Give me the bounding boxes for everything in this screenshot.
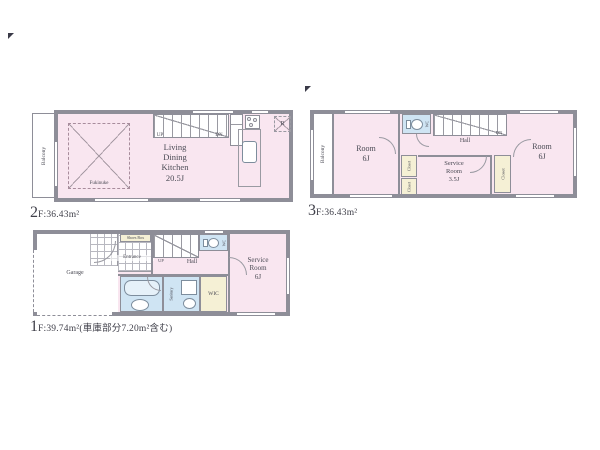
refrigerator-icon: R [274,116,291,132]
kitchen-sink-icon [242,141,257,163]
cabinet-divider [231,124,242,125]
hall-label: Hall [178,259,206,266]
floor-number: 1 [30,318,38,336]
hall-label: Hall [450,138,480,145]
wc-label: WC [425,121,430,127]
closet-label: Closet [407,161,412,171]
window [350,194,392,198]
ldk-label: Living Dining Kitchen 20.5J [135,142,215,183]
window [310,130,314,180]
stove-burner [249,123,253,127]
washbasin-icon [183,298,196,309]
window [520,110,558,114]
window [252,110,268,114]
window [237,312,275,316]
window [200,198,240,202]
stove-burner [247,117,251,121]
staircase-1f [153,234,199,258]
window [54,142,58,186]
void-area: Fukinuke [68,123,130,189]
balcony-2f: Balcony [32,113,54,198]
window [95,198,148,202]
room-3f-left: Room 6J [334,114,400,194]
balcony-label: Balcony [41,146,47,164]
closet-label: Closet [500,168,505,180]
toilet-icon [411,119,423,130]
north-mark-icon [8,33,14,39]
refrigerator-label: R [275,121,290,128]
walk-in-closet: WIC [200,276,227,312]
window [193,110,233,114]
floor-area-text: F:36.43m² [38,210,79,220]
toilet-room-1f: WC [199,234,228,251]
sanitary-label: Sanitary [169,287,174,300]
balcony-label: Balcony [320,145,326,163]
stairs-down-label: DN [492,130,506,135]
void-label: Fukinuke [69,181,129,187]
floor-number: 3 [308,202,316,220]
closet: Closet [494,155,511,193]
floor-1f-area: 1F:39.74m²(車庫部分7.20m²含む) [30,318,172,336]
floor-area-text: F:39.74m²(車庫部分7.20m²含む) [38,320,172,334]
wic-label: WIC [201,291,226,298]
floor-3f-area: 3F:36.43m² [308,202,357,220]
closet-label: Closet [407,181,412,191]
washing-machine-icon [181,280,197,295]
floor-area-text: F:36.43m² [316,208,357,218]
stove-icon [245,115,260,129]
entrance-label: Entrance [110,255,154,261]
shoes-box-label: Shoes Box [121,236,150,241]
floor-2f-area: 2F:36.43m² [30,204,79,222]
floor-number: 2 [30,204,38,222]
window [516,194,554,198]
floorplan-image: Balcony Fukinuke UP DN R Living Dining K… [0,0,600,450]
stairs-down-label: DN [212,133,226,139]
shoes-box: Shoes Box [120,234,151,242]
closet: Closet [401,155,417,177]
garage-opening [33,250,37,312]
stairs-up-label: UP [154,258,168,263]
window [573,128,577,176]
sanitary-room: Sanitary [163,276,200,312]
wc-label: WC [222,239,227,245]
window [205,230,223,234]
stove-burner [253,118,257,122]
garage-opening [37,312,112,316]
balcony-3f: Balcony [314,114,334,194]
washplace-icon [131,299,149,311]
north-mark-icon [305,86,311,92]
window [286,258,290,294]
stairs-up-label: UP [153,133,167,139]
toilet-icon [208,238,219,248]
toilet-room-3f: WC [402,114,431,134]
closet: Closet [401,178,417,195]
window [345,110,390,114]
garage-label: Garage [45,270,105,277]
